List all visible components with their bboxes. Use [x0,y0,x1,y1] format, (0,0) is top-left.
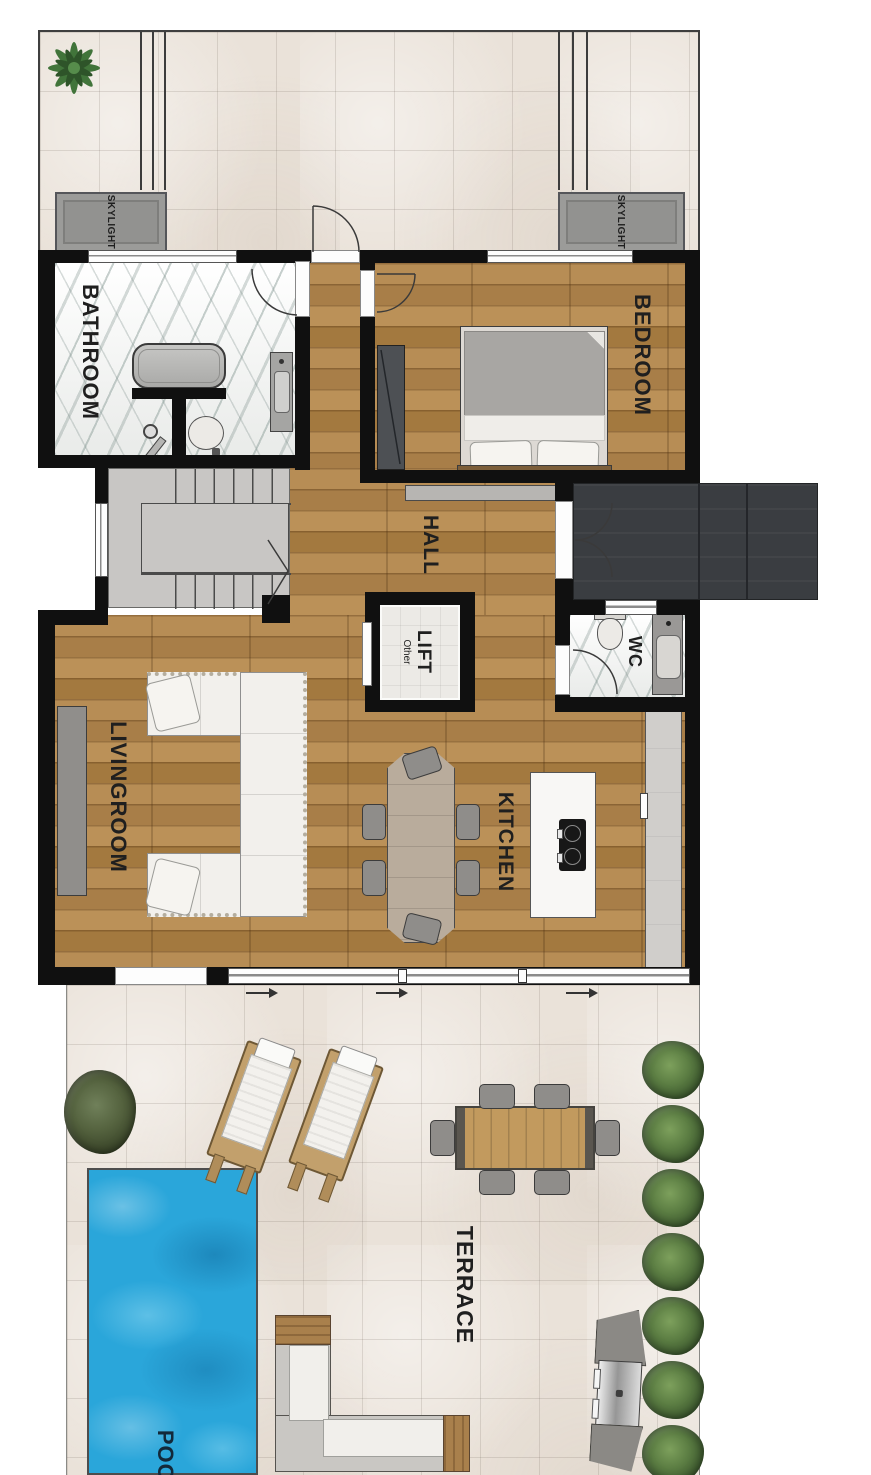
outdoor-sofa-icon [275,1315,471,1472]
skylight-icon [55,192,167,252]
lift-sublabel: Other [402,639,413,664]
kitchen-counter-icon [645,703,682,969]
roof-terrace-joint-line [140,32,142,190]
deck-seam [698,484,700,599]
sofa-cushions-vertical [289,1345,329,1421]
bbq-knob [616,1390,623,1397]
roof-terrace-joint-line [152,32,154,190]
roof-terrace-joint-line [164,32,166,190]
bbq-handle [591,1399,599,1419]
deck-seam [746,484,748,599]
wall-left-lower [38,610,55,985]
sink-basin [274,371,290,413]
wc-door-opening [555,645,570,695]
floor-plan: SKYLIGHT SKYLIGHT [0,0,871,1475]
bush-icon [642,1425,704,1475]
knob-icon [557,829,563,839]
sofa-wood-end [443,1415,470,1472]
roof-terrace-joint-line [572,32,574,190]
window-icon [605,600,657,615]
table-end-cap [585,1108,593,1168]
chair-icon [534,1170,570,1195]
vanity-sink-icon [652,612,683,695]
roof-door-opening [311,250,360,263]
terrace-door-opening [115,967,207,985]
staircase-icon [108,468,290,608]
bbq-body [595,1360,642,1428]
corner-sofa-icon [147,670,308,919]
chair-icon [362,860,386,896]
wall-bedroom-bottom [360,470,700,483]
wall-right-upper [685,250,700,483]
sofa-spine [240,672,307,917]
table-end-cap [457,1108,465,1168]
bath-partition-wall [132,388,226,399]
chair-icon [595,1120,620,1156]
toilet-icon [188,416,224,450]
lift-label: LIFT [413,630,435,674]
bush-icon [64,1070,136,1154]
slide-arrow-icon [376,992,406,994]
chair-icon [534,1084,570,1109]
wall-bathroom-bottom [38,455,310,468]
outdoor-table-icon [455,1106,595,1170]
bath-stub-wall [172,399,186,455]
window-icon [487,250,633,263]
bush-icon [642,1233,704,1291]
knob-icon [557,853,563,863]
bbq-handle [593,1369,601,1389]
hall-corridor-floor [310,263,360,470]
sofa-wood-end [275,1315,331,1345]
skylight-icon [558,192,685,252]
sofa-cushions-horizontal [323,1419,445,1457]
stair-landing-line [141,573,291,575]
wall-stub-stairs [262,595,290,623]
kitchen-island-icon [530,772,596,918]
window-icon [88,250,237,263]
roof-terrace-joint-line [558,32,560,190]
slide-arrow-icon [246,992,276,994]
skylight-inner-frame [566,200,677,244]
shower-icon [143,424,158,439]
chair-icon [456,860,480,896]
chair-icon [479,1084,515,1109]
swimming-pool-icon [87,1168,258,1475]
cooktop-icon [559,819,586,871]
chair-icon [456,804,480,840]
tv-console-icon [57,706,87,896]
stair-railing [141,503,289,573]
entry-deck [573,483,818,600]
bush-icon [642,1105,704,1163]
slider-connector [518,969,527,983]
plant-icon [38,32,110,104]
bed-sheet-fold [464,415,605,441]
sink-basin [656,635,681,679]
bbq-side-table [594,1308,649,1367]
chair-icon [430,1120,455,1156]
window-icon [95,503,108,577]
bbq-side-table [589,1424,643,1475]
slide-arrow-icon [566,992,596,994]
bathtub-icon [132,343,226,389]
wall-wc-bottom [555,697,700,712]
faucet-icon [279,359,284,364]
console-table-icon [405,485,562,501]
bush-icon [642,1361,704,1419]
burner-icon [564,825,581,842]
counter-sink-icon [640,793,648,819]
vanity-sink-icon [270,352,293,432]
bedroom-door-opening [360,270,375,317]
chair-icon [479,1170,515,1195]
burner-icon [564,848,581,865]
roof-terrace-joint-line [586,32,588,190]
toilet-bowl [597,618,623,650]
sliding-door-icon[interactable] [228,968,690,984]
faucet-icon [666,621,671,626]
lift-label-block: LIFT Other [398,607,438,697]
bbq-grill-icon [587,1308,653,1473]
bed-icon [460,326,608,476]
bush-icon [642,1169,704,1227]
entry-door-opening [555,501,573,579]
chair-icon [362,804,386,840]
slider-connector [398,969,407,983]
wall-right-lower [685,600,700,985]
bush-icon [642,1041,704,1099]
elevator-door [362,622,372,686]
wardrobe-icon [377,345,405,470]
wall-left-upper [38,250,55,468]
bed-duvet [464,331,605,417]
bathroom-door-opening [295,261,310,317]
skylight-inner-frame [63,200,159,244]
bathtub-inner [138,349,220,383]
